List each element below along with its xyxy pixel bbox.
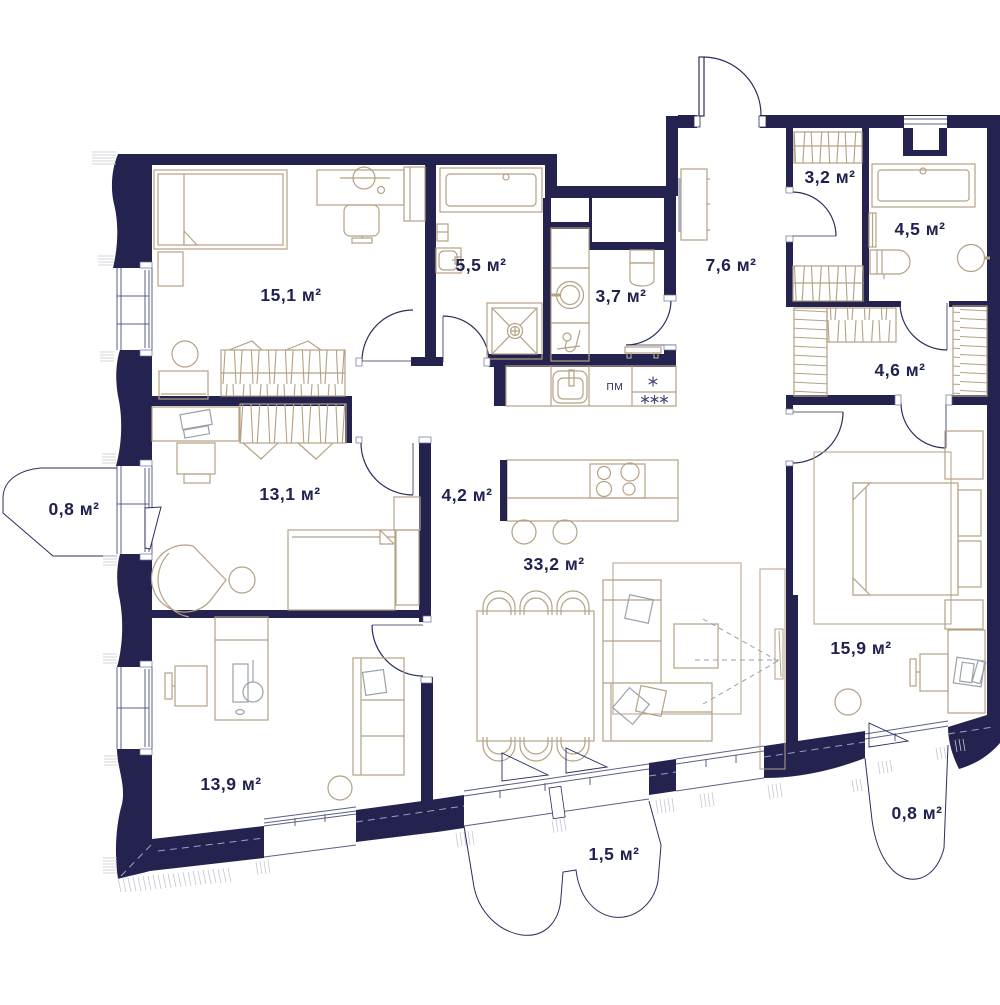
svg-text:ПМ: ПМ <box>606 382 623 393</box>
svg-text:15,1 м²: 15,1 м² <box>260 285 321 305</box>
svg-text:7,6 м²: 7,6 м² <box>706 255 757 275</box>
svg-text:0,8 м²: 0,8 м² <box>49 499 100 519</box>
svg-text:33,2 м²: 33,2 м² <box>523 554 584 574</box>
svg-text:5,5 м²: 5,5 м² <box>456 255 507 275</box>
svg-text:1,5 м²: 1,5 м² <box>589 844 640 864</box>
svg-text:3,7 м²: 3,7 м² <box>596 286 647 306</box>
svg-text:4,5 м²: 4,5 м² <box>895 219 946 239</box>
svg-text:13,1 м²: 13,1 м² <box>259 484 320 504</box>
svg-text:15,9 м²: 15,9 м² <box>830 638 891 658</box>
svg-text:0,8 м²: 0,8 м² <box>892 803 943 823</box>
svg-text:4,2 м²: 4,2 м² <box>442 485 493 505</box>
svg-text:13,9 м²: 13,9 м² <box>200 774 261 794</box>
svg-text:4,6 м²: 4,6 м² <box>875 360 926 380</box>
svg-text:3,2 м²: 3,2 м² <box>805 167 856 187</box>
